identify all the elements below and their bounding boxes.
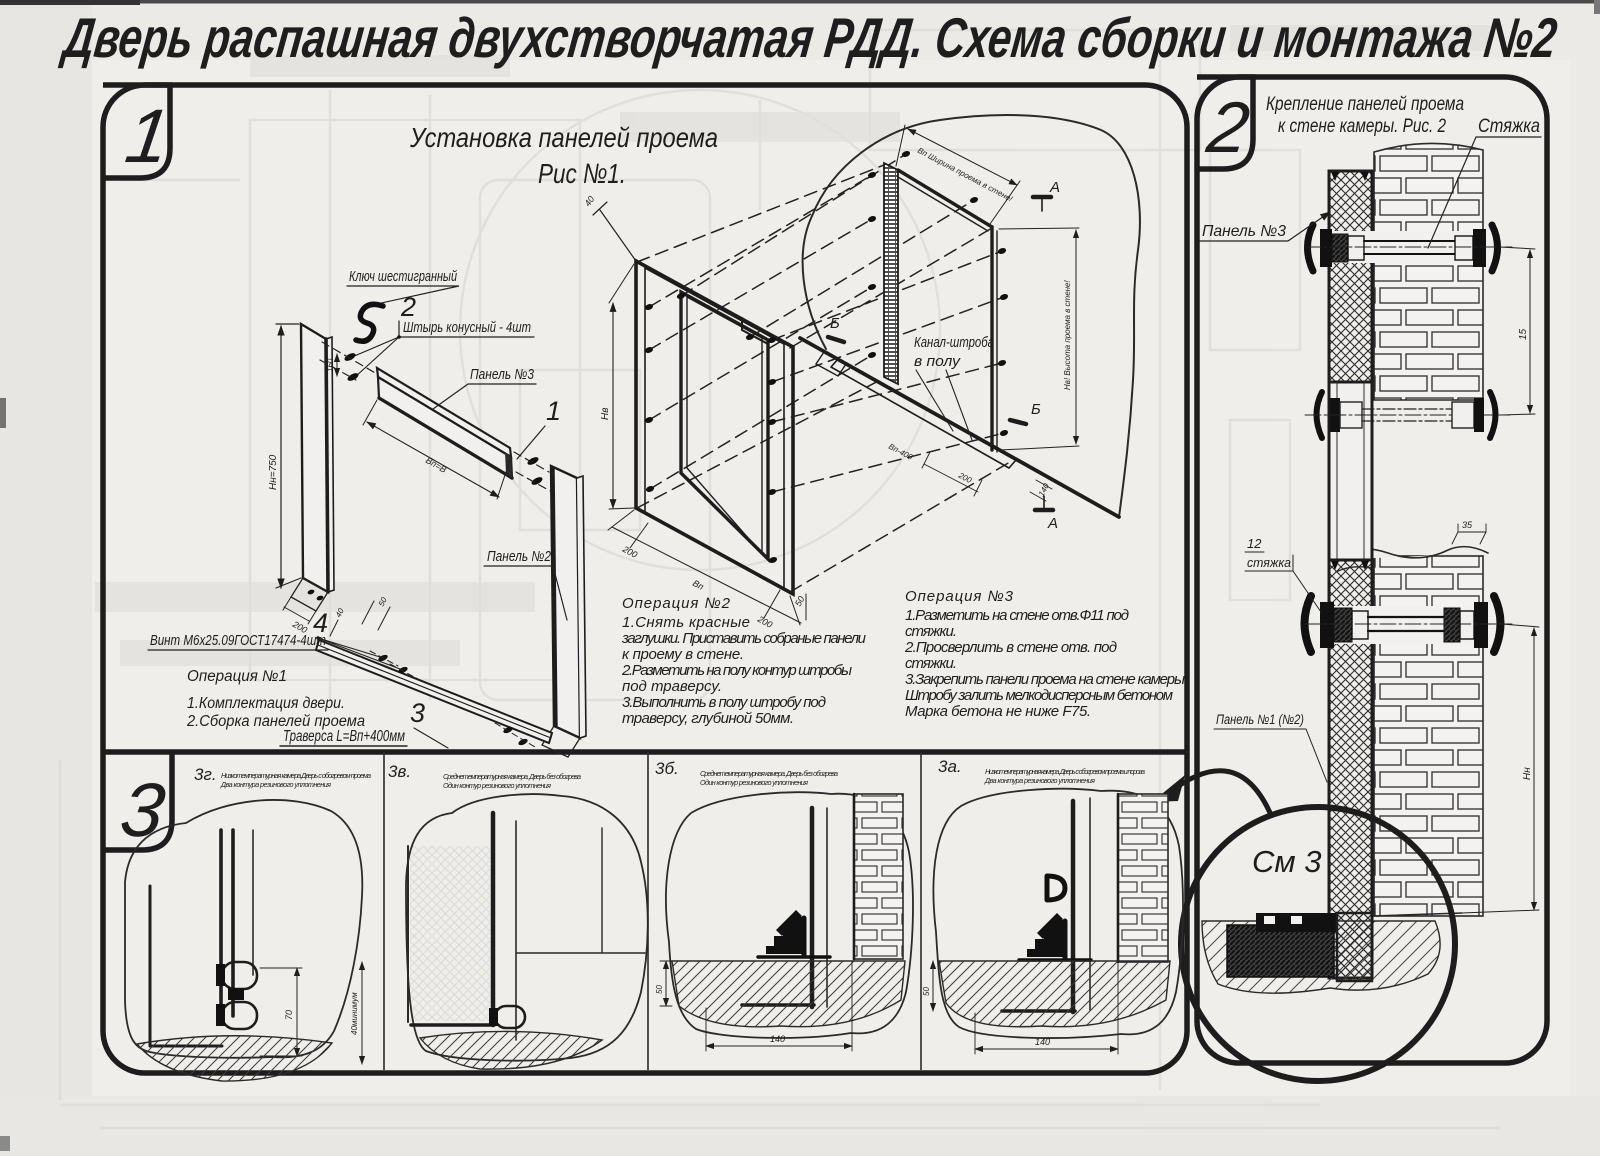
svg-text:1.Разметить на стене отв.Ф11 п: 1.Разметить на стене отв.Ф11 под: [905, 607, 1129, 624]
svg-text:Винт М6х25.09ГОСТ17474-4шт: Винт М6х25.09ГОСТ17474-4шт: [150, 633, 326, 649]
svg-text:3.Выполнить в полу штробу под: 3.Выполнить в полу штробу под: [622, 694, 826, 711]
svg-text:Панель №2: Панель №2: [487, 549, 551, 565]
svg-text:Б: Б: [1031, 401, 1041, 418]
svg-text:Траверса L=Вп+400мм: Траверса L=Вп+400мм: [283, 728, 405, 745]
svg-text:стяжки.: стяжки.: [905, 623, 957, 640]
svg-text:Операция №3: Операция №3: [905, 588, 1014, 605]
svg-text:к стене камеры. Рис. 2: к стене камеры. Рис. 2: [1278, 116, 1446, 137]
svg-text:2.Разметить на полу контур штр: 2.Разметить на полу контур штробы: [621, 662, 852, 679]
svg-text:3.Закрепить панели проема на с: 3.Закрепить панели проема на стене камер…: [905, 671, 1185, 688]
svg-text:Панель №1 (№2): Панель №1 (№2): [1216, 712, 1304, 727]
svg-text:стяжка: стяжка: [1247, 555, 1291, 570]
svg-text:15: 15: [1518, 328, 1529, 340]
svg-text:заглушки. Приставить собраные: заглушки. Приставить собраные панели: [621, 630, 867, 647]
svg-text:1.Снять красные: 1.Снять красные: [622, 614, 750, 631]
svg-text:70: 70: [284, 1010, 294, 1020]
svg-text:Низкотемпературная камера.Двер: Низкотемпературная камера.Дверь с обогре…: [221, 771, 371, 780]
svg-text:3а.: 3а.: [938, 757, 962, 776]
svg-text:траверсу, глубиной 50мм.: траверсу, глубиной 50мм.: [622, 710, 794, 727]
svg-text:160: 160: [326, 358, 335, 372]
svg-text:140: 140: [770, 1034, 785, 1044]
svg-text:Б: Б: [830, 315, 840, 332]
svg-text:Один контур резинового уплотне: Один контур резинового уплотнения: [443, 781, 551, 790]
svg-text:Крепление панелей проема: Крепление панелей проема: [1266, 94, 1464, 115]
svg-text:А: А: [1049, 179, 1060, 196]
svg-text:Панель №3: Панель №3: [470, 367, 534, 383]
svg-text:Дверь распашная двухстворчатая: Дверь распашная двухстворчатая РДД. Схем…: [58, 6, 1561, 69]
svg-text:Установка панелей проема: Установка панелей проема: [409, 122, 718, 153]
svg-text:50: 50: [655, 985, 664, 994]
svg-text:Среднетемпературная камера. Дв: Среднетемпературная камера. Дверь без об…: [443, 772, 581, 781]
svg-text:Нв! Высота проема в стене!: Нв! Высота проема в стене!: [1063, 280, 1072, 390]
svg-text:140: 140: [1035, 1037, 1050, 1047]
svg-text:Штробу залить мелкодисперсным: Штробу залить мелкодисперсным бетоном: [905, 687, 1173, 704]
svg-text:к проему в стене.: к проему в стене.: [622, 646, 744, 663]
svg-text:Стяжка: Стяжка: [1478, 116, 1540, 137]
svg-text:Рис №1.: Рис №1.: [538, 158, 626, 189]
svg-text:Операция №2: Операция №2: [622, 595, 731, 612]
svg-text:А: А: [1047, 515, 1058, 532]
svg-text:Штырь конусный - 4шт: Штырь конусный - 4шт: [403, 320, 531, 336]
svg-text:Ключ шестигранный: Ключ шестигранный: [349, 269, 457, 285]
svg-text:3б.: 3б.: [655, 759, 679, 778]
svg-text:1.Комплектация двери.: 1.Комплектация двери.: [187, 695, 345, 712]
svg-text:3в.: 3в.: [388, 762, 411, 781]
svg-text:50: 50: [922, 987, 931, 996]
svg-text:Среднетемпературная камера. Дв: Среднетемпературная камера. Дверь без об…: [700, 769, 838, 778]
svg-text:в полу: в полу: [914, 354, 961, 370]
svg-text:Один контур резинового уплотне: Один контур резинового уплотнения: [700, 778, 808, 787]
svg-text:Марка бетона не ниже F75.: Марка бетона не ниже F75.: [905, 703, 1091, 720]
svg-text:Нн: Нн: [1522, 767, 1533, 780]
svg-text:3: 3: [410, 698, 425, 728]
svg-text:Канал-штроба: Канал-штроба: [914, 335, 994, 351]
svg-text:Операция №1: Операция №1: [187, 668, 287, 685]
svg-text:Низкотемпературная камера. Две: Низкотемпературная камера. Дверь с обогр…: [985, 767, 1145, 776]
svg-text:1: 1: [546, 396, 561, 426]
svg-text:под траверсу.: под траверсу.: [622, 678, 722, 695]
svg-text:См 3: См 3: [1252, 844, 1322, 879]
svg-text:40минимум: 40минимум: [350, 992, 359, 1035]
svg-text:Нн=750: Нн=750: [268, 454, 279, 490]
svg-text:2: 2: [400, 292, 416, 322]
svg-text:Два контура резинового уплотне: Два контура резинового уплотнения: [220, 780, 331, 789]
svg-text:12: 12: [1247, 536, 1262, 551]
svg-text:Панель №3: Панель №3: [1202, 223, 1286, 240]
svg-text:35: 35: [1462, 520, 1473, 530]
svg-text:Два контура резинового уплотне: Два контура резинового уплотнения: [984, 776, 1095, 785]
svg-text:Нв: Нв: [600, 408, 611, 420]
svg-text:2.Просверлить в стене отв. п: 2.Просверлить в стене отв. под: [904, 639, 1117, 656]
svg-text:3г.: 3г.: [194, 765, 217, 784]
svg-text:стяжки.: стяжки.: [905, 655, 957, 672]
